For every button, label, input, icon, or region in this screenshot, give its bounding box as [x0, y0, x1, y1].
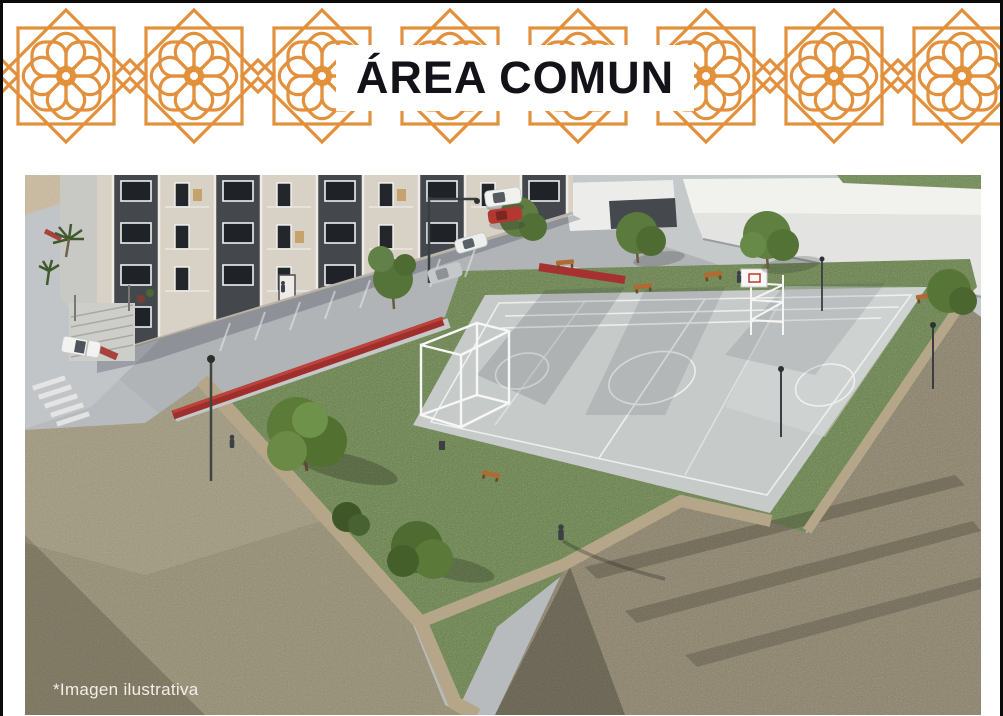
- page-title: ÁREA COMUN: [356, 52, 674, 104]
- trash-bin: [439, 441, 445, 450]
- title-plate: ÁREA COMUN: [336, 45, 694, 111]
- image-caption: *Imagen ilustrativa: [53, 680, 199, 700]
- header-band: ÁREA COMUN: [3, 3, 1003, 153]
- render-illustration: [25, 175, 981, 715]
- render-image: *Imagen ilustrativa: [25, 175, 981, 715]
- brochure-page: ÁREA COMUN: [0, 0, 1003, 716]
- person: [558, 524, 564, 540]
- person: [230, 435, 235, 448]
- person: [737, 271, 741, 283]
